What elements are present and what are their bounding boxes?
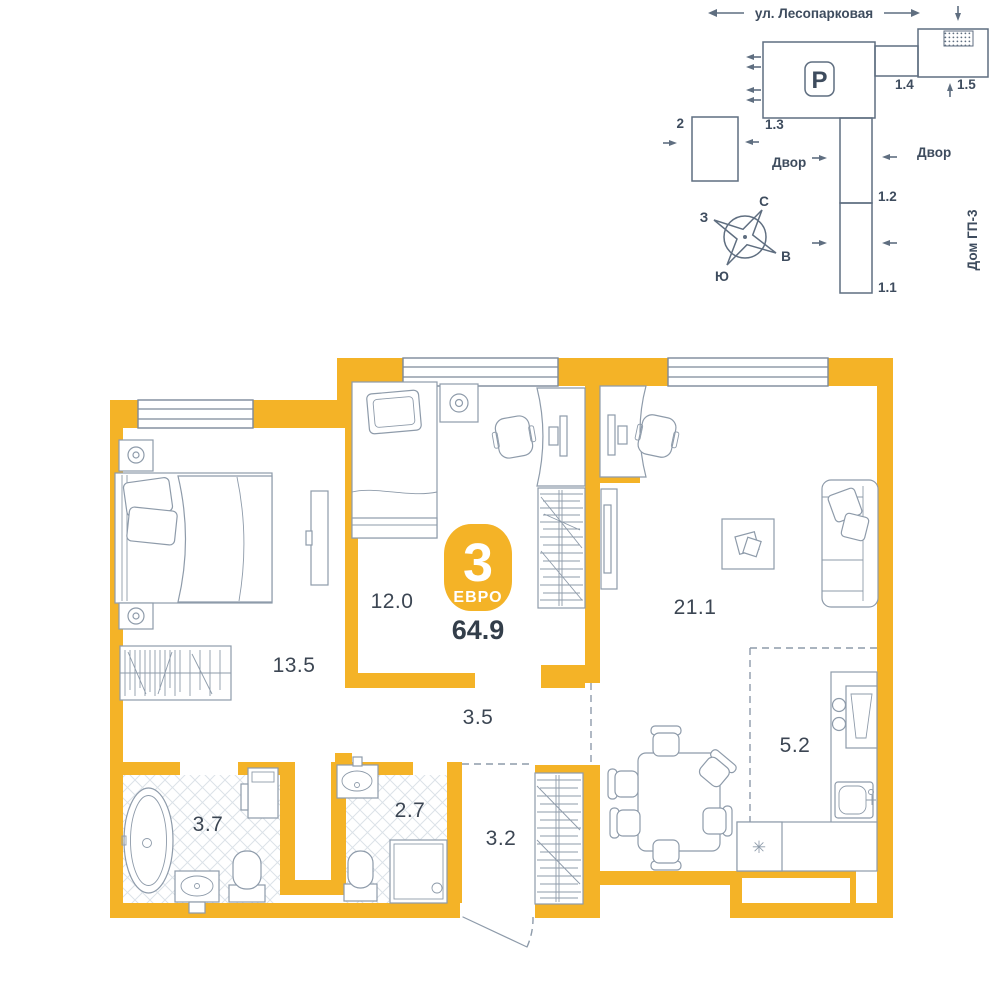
label-1-3: 1.3 xyxy=(765,117,784,132)
desk-bedroom-small xyxy=(537,388,585,486)
compass-west: З xyxy=(700,210,708,225)
apartment-badge: 3 ЕВРО xyxy=(444,524,512,611)
site-plan: ул. Лесопарковая P 1.3 1.4 1.5 xyxy=(663,6,988,295)
monitor-living xyxy=(608,415,615,455)
badge-rooms-count: 3 xyxy=(463,533,493,593)
kitchen-sink xyxy=(835,782,876,818)
building-1-4 xyxy=(875,46,918,76)
room-label-wc: 2.7 xyxy=(395,799,426,822)
office-chair-bedroom-small xyxy=(490,414,538,461)
entry-rack xyxy=(535,773,583,904)
parking-entry-arrows xyxy=(746,54,761,103)
yard-label-right: Двор xyxy=(917,145,951,160)
compass-north: С xyxy=(759,194,769,209)
label-2: 2 xyxy=(676,116,684,131)
total-area: 64.9 xyxy=(452,615,505,645)
building-2-arrows xyxy=(663,139,759,146)
wardrobe-bedroom-large xyxy=(120,646,231,700)
badge-format: ЕВРО xyxy=(453,589,502,606)
single-bed xyxy=(352,382,437,538)
label-1-2: 1.2 xyxy=(878,189,897,204)
building-1-1 xyxy=(840,203,872,293)
window-living xyxy=(668,358,828,386)
desk-living xyxy=(600,386,646,477)
yard-label-left: Двор xyxy=(772,155,806,170)
shower xyxy=(390,840,447,903)
street-label: ул. Лесопарковая xyxy=(755,6,873,21)
toilet-bathroom xyxy=(229,851,265,902)
room-label-hallway: 3.5 xyxy=(463,706,494,729)
parking-icon: P xyxy=(805,62,834,96)
sofa xyxy=(822,480,878,607)
label-1-4: 1.4 xyxy=(895,77,914,92)
coffee-table xyxy=(722,519,774,569)
room-label-kitchen: 5.2 xyxy=(780,734,811,757)
house-label: Дом ГП-3 xyxy=(965,209,980,270)
building-1-2 xyxy=(840,118,872,203)
window-bedroom-large xyxy=(138,400,253,428)
nightstand-lamp-3 xyxy=(440,384,478,422)
fridge: ✳ xyxy=(737,822,782,871)
nightstand-lamp-2 xyxy=(119,603,153,629)
wardrobe-bedroom-small xyxy=(538,488,585,608)
room-label-bathroom: 3.7 xyxy=(193,813,224,836)
plan-canvas: ул. Лесопарковая P 1.3 1.4 1.5 xyxy=(0,0,1000,1000)
room-label-entry: 3.2 xyxy=(486,827,517,850)
room-label-bedroom-small: 12.0 xyxy=(371,590,414,613)
current-section-marker xyxy=(944,31,973,46)
compass-rose: С З В Ю xyxy=(700,194,791,284)
building-2 xyxy=(692,117,738,181)
floorplan-page: ул. Лесопарковая P 1.3 1.4 1.5 xyxy=(0,0,1000,1000)
compass-south: Ю xyxy=(715,269,729,284)
dresser xyxy=(306,491,328,585)
fridge-icon: ✳ xyxy=(752,838,766,857)
double-bed xyxy=(115,473,272,603)
street-arrow-left xyxy=(708,9,744,17)
floor-plan: ✳ xyxy=(110,358,893,947)
street-arrow-right xyxy=(884,9,920,17)
nightstand-lamp-1 xyxy=(119,440,153,471)
label-1-1: 1.1 xyxy=(878,280,897,295)
monitor xyxy=(560,416,567,456)
room-label-living: 21.1 xyxy=(674,596,717,619)
entrance-door xyxy=(463,917,533,947)
room-label-bedroom-large: 13.5 xyxy=(273,654,316,677)
label-1-5: 1.5 xyxy=(957,77,976,92)
compass-east: В xyxy=(781,249,791,264)
tv-unit xyxy=(601,489,617,589)
toilet-wc xyxy=(344,851,377,901)
svg-text:P: P xyxy=(811,67,827,94)
